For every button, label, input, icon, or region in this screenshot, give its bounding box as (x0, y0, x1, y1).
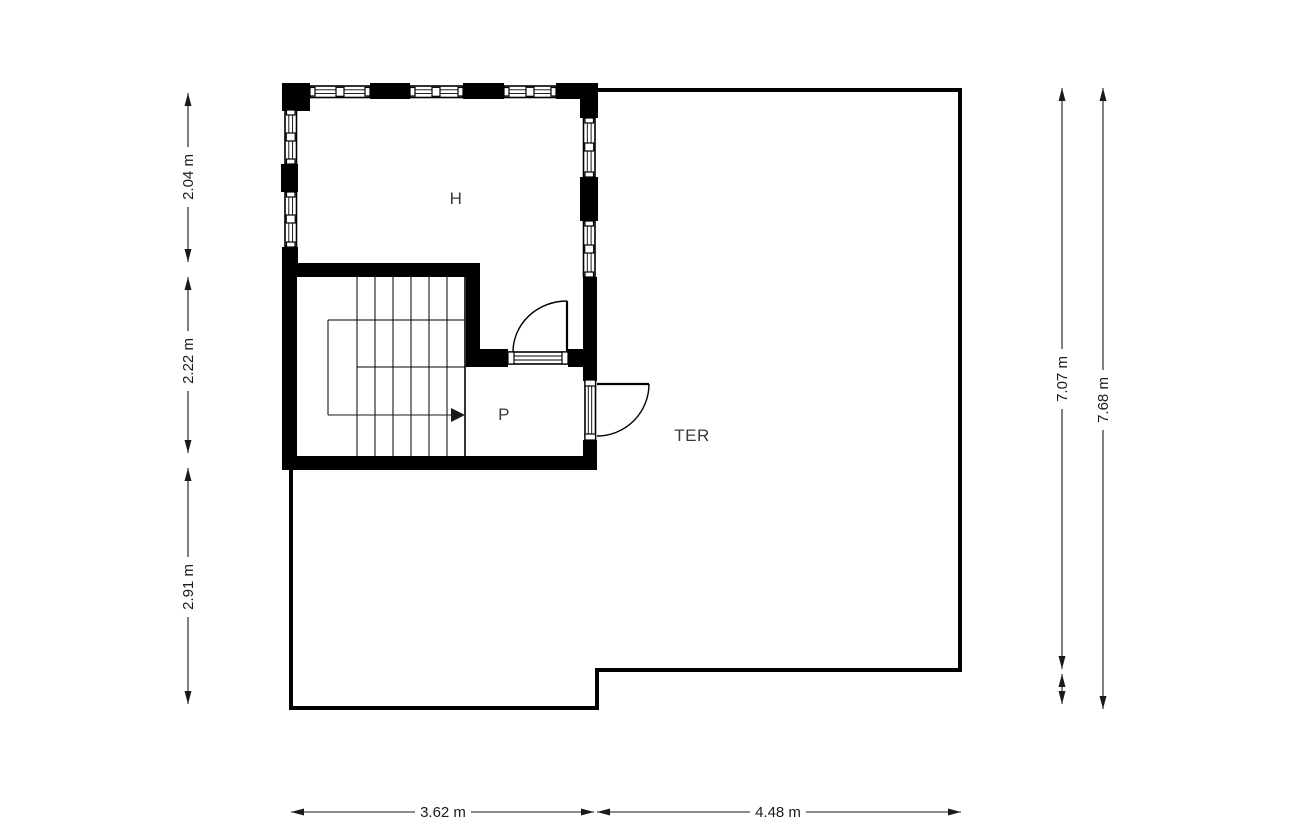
dimension-label: 7.07 m (1054, 356, 1071, 402)
staircase (328, 277, 465, 456)
dimension-label: 2.91 m (180, 564, 197, 610)
door-h-p (508, 301, 568, 364)
dimension-right-step (1059, 674, 1066, 704)
stair-room-bottom-wall (282, 456, 597, 470)
stair-room-top-wall (282, 263, 480, 277)
arrowhead (1059, 691, 1066, 704)
door-swing-arc (513, 301, 567, 352)
arrowhead (1059, 674, 1066, 687)
floor-plan-canvas: H P TER 2.04 m 2.22 m 2.91 m (0, 0, 1290, 840)
stair-direction-arrow (328, 408, 465, 422)
door-threshold (508, 352, 568, 364)
arrowhead (291, 809, 304, 816)
dimension-bottom-right: 4.48 m (597, 803, 961, 821)
wall-pier (580, 177, 598, 221)
dimension-label: 3.62 m (420, 804, 466, 821)
arrowhead (581, 809, 594, 816)
room-label-p: P (498, 405, 510, 424)
wall-pier (463, 83, 504, 99)
door-swing-arc (597, 384, 649, 436)
window-segment (504, 86, 556, 98)
arrowhead (1059, 656, 1066, 669)
arrowhead (1100, 696, 1107, 709)
window-segment (584, 221, 596, 277)
room-label-ter: TER (674, 426, 710, 445)
terrace-outline (291, 90, 960, 708)
window-segment (410, 86, 463, 98)
dimension-bottom-left: 3.62 m (291, 803, 594, 821)
dimension-left-bottom: 2.91 m (179, 468, 197, 704)
dimension-label: 7.68 m (1095, 377, 1112, 423)
room-label-h: H (450, 189, 463, 208)
p-room-right-wall (583, 440, 597, 470)
arrowhead (948, 809, 961, 816)
door-p-ter (585, 380, 649, 440)
arrowhead (185, 691, 192, 704)
dimension-right-outer: 7.68 m (1094, 88, 1112, 709)
dimension-label: 4.48 m (755, 804, 801, 821)
p-room-right-wall (583, 277, 597, 381)
wall-pier (370, 83, 410, 99)
floor-plan: H P TER 2.04 m 2.22 m 2.91 m (0, 0, 1290, 840)
arrowhead (1100, 88, 1107, 101)
stair-room-left-wall (282, 263, 297, 470)
dimension-label: 2.04 m (180, 154, 197, 200)
wall-corner (282, 83, 310, 111)
window-segment (584, 118, 596, 177)
arrowhead (1059, 88, 1066, 101)
arrowhead (185, 93, 192, 106)
arrowhead (185, 277, 192, 290)
arrowhead (185, 468, 192, 481)
arrowhead (185, 249, 192, 262)
wall-pier (281, 164, 298, 192)
door-threshold (585, 380, 596, 440)
window-segment (285, 110, 297, 164)
window-segment (285, 192, 297, 247)
window-segment (310, 86, 370, 98)
dimension-left-middle: 2.22 m (179, 277, 197, 453)
dimension-label: 2.22 m (180, 338, 197, 384)
dimension-right-inner: 7.07 m (1053, 88, 1071, 669)
arrowhead (185, 440, 192, 453)
dimension-left-top: 2.04 m (179, 93, 197, 262)
room-h-walls (281, 83, 598, 277)
arrowhead (597, 809, 610, 816)
stair-room-right-wall (466, 263, 480, 351)
door-jamb-wall (466, 349, 508, 367)
